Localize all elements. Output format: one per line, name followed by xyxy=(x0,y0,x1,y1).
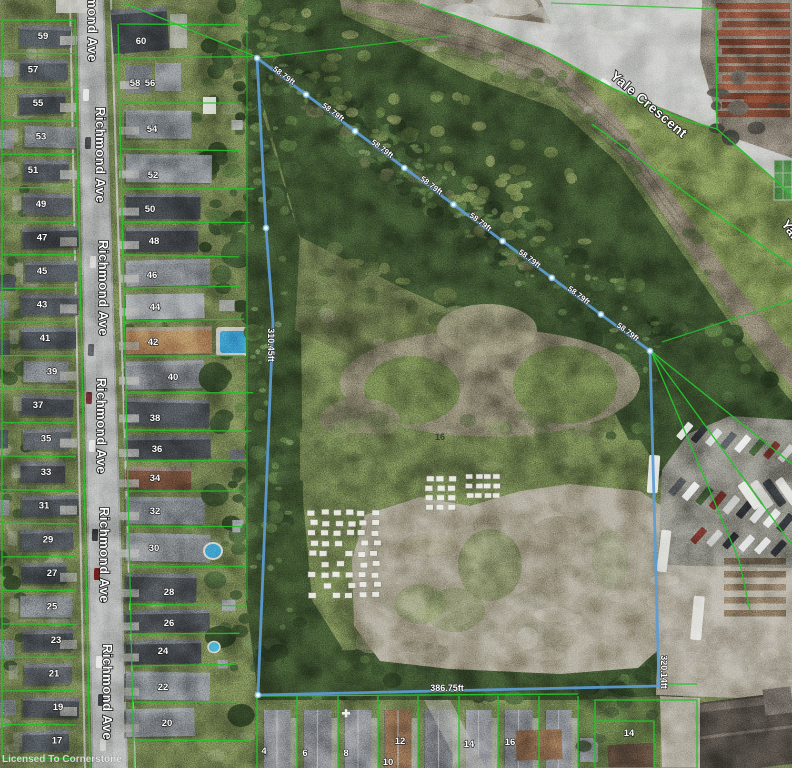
svg-text:35: 35 xyxy=(41,434,52,445)
svg-text:16: 16 xyxy=(505,737,516,748)
svg-text:386.75ft: 386.75ft xyxy=(430,683,464,693)
svg-text:30: 30 xyxy=(149,543,160,554)
svg-text:14: 14 xyxy=(624,728,635,739)
svg-text:32: 32 xyxy=(150,506,161,517)
svg-text:41: 41 xyxy=(40,333,51,344)
svg-text:54: 54 xyxy=(147,124,158,135)
svg-text:Richmond Ave: Richmond Ave xyxy=(85,0,100,62)
svg-text:28: 28 xyxy=(164,587,175,598)
svg-text:56: 56 xyxy=(145,78,156,89)
svg-text:19: 19 xyxy=(53,702,64,713)
svg-text:17: 17 xyxy=(52,736,63,747)
svg-text:45: 45 xyxy=(37,266,48,277)
svg-text:44: 44 xyxy=(150,302,161,313)
svg-text:20: 20 xyxy=(162,718,173,729)
svg-text:46: 46 xyxy=(147,270,158,281)
svg-text:57: 57 xyxy=(28,65,39,76)
svg-text:12: 12 xyxy=(395,736,406,747)
svg-text:8: 8 xyxy=(343,748,348,759)
svg-text:59: 59 xyxy=(38,31,49,42)
svg-text:26: 26 xyxy=(164,618,175,629)
svg-text:23: 23 xyxy=(51,635,62,646)
svg-text:38: 38 xyxy=(150,413,161,424)
svg-text:42: 42 xyxy=(148,337,159,348)
svg-text:Licensed To Cornerstone: Licensed To Cornerstone xyxy=(2,754,122,765)
svg-text:6: 6 xyxy=(302,748,307,759)
svg-text:49: 49 xyxy=(36,199,47,210)
svg-text:310.45ft: 310.45ft xyxy=(266,328,276,362)
svg-text:21: 21 xyxy=(49,668,60,679)
svg-text:43: 43 xyxy=(37,299,48,310)
svg-text:4: 4 xyxy=(261,746,267,757)
svg-text:53: 53 xyxy=(36,132,47,143)
svg-text:31: 31 xyxy=(39,501,50,512)
svg-text:34: 34 xyxy=(150,473,161,484)
svg-text:Richmond Ave: Richmond Ave xyxy=(93,107,108,203)
svg-text:14: 14 xyxy=(464,739,475,750)
svg-text:24: 24 xyxy=(158,646,169,657)
svg-text:320.14ft: 320.14ft xyxy=(659,655,669,689)
svg-text:52: 52 xyxy=(148,170,159,181)
svg-text:40: 40 xyxy=(168,372,179,383)
svg-text:48: 48 xyxy=(149,236,160,247)
svg-text:58: 58 xyxy=(130,78,141,89)
svg-text:10: 10 xyxy=(383,757,394,768)
svg-text:47: 47 xyxy=(37,232,48,243)
svg-text:50: 50 xyxy=(145,204,156,215)
svg-text:39: 39 xyxy=(47,367,58,378)
svg-text:33: 33 xyxy=(41,467,52,478)
svg-text:Richmond Ave: Richmond Ave xyxy=(94,378,109,474)
svg-text:Richmond Ave: Richmond Ave xyxy=(100,644,115,740)
svg-text:60: 60 xyxy=(136,36,147,47)
svg-text:51: 51 xyxy=(28,165,39,176)
svg-text:22: 22 xyxy=(158,682,169,693)
svg-text:Richmond Ave: Richmond Ave xyxy=(96,240,111,336)
svg-text:25: 25 xyxy=(47,601,58,612)
svg-text:Richmond Ave: Richmond Ave xyxy=(97,507,112,603)
svg-text:29: 29 xyxy=(43,534,54,545)
svg-text:55: 55 xyxy=(33,98,44,109)
svg-text:27: 27 xyxy=(47,568,58,579)
svg-text:36: 36 xyxy=(152,444,163,455)
svg-text:37: 37 xyxy=(33,400,44,411)
